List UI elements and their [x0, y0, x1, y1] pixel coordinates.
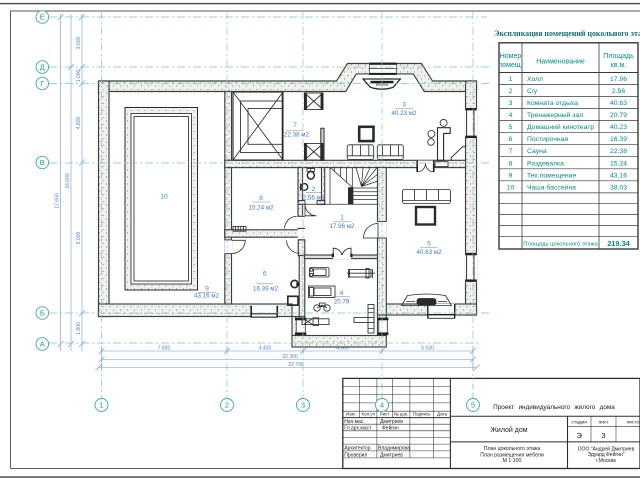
- svg-text:5: 5: [509, 124, 513, 131]
- svg-text:1: 1: [340, 215, 344, 222]
- svg-text:40.23: 40.23: [610, 124, 627, 131]
- svg-text:10: 10: [507, 184, 515, 191]
- svg-text:4.800: 4.800: [76, 117, 82, 130]
- svg-text:22.38 м2: 22.38 м2: [284, 132, 309, 139]
- svg-text:Д: Д: [40, 63, 45, 72]
- svg-text:Гл.арх.маст: Гл.арх.маст: [344, 425, 372, 431]
- svg-text:1: 1: [509, 76, 513, 83]
- svg-text:кв.м.: кв.м.: [611, 62, 627, 69]
- svg-text:9: 9: [205, 286, 209, 293]
- svg-text:1.800: 1.800: [76, 322, 82, 335]
- svg-text:стадия: стадия: [572, 421, 588, 426]
- svg-text:4 400: 4 400: [259, 345, 272, 351]
- svg-text:№ док.: № док.: [394, 412, 408, 417]
- svg-text:Проект индивидуального жилог: Проект индивидуального жилого дома: [493, 404, 615, 411]
- svg-text:Владимирова: Владимирова: [378, 446, 410, 452]
- svg-text:Жилой дом: Жилой дом: [490, 426, 527, 434]
- svg-text:Б: Б: [40, 309, 45, 318]
- svg-text:219.34: 219.34: [607, 239, 630, 248]
- svg-text:4: 4: [340, 290, 344, 297]
- svg-text:40.23 м2: 40.23 м2: [392, 110, 417, 117]
- svg-text:38.03: 38.03: [610, 184, 627, 191]
- svg-text:43.16: 43.16: [610, 172, 627, 179]
- svg-text:помещ.: помещ.: [498, 62, 522, 69]
- svg-text:22 790: 22 790: [288, 362, 304, 368]
- svg-text:М 1:100: М 1:100: [503, 458, 522, 464]
- svg-text:Экспликация помещений цокольно: Экспликация помещений цокольного этажа: [494, 29, 640, 38]
- svg-text:План цокольного этажа: План цокольного этажа: [484, 446, 541, 452]
- svg-text:Изм.: Изм.: [346, 412, 356, 417]
- svg-text:20.79: 20.79: [334, 298, 350, 305]
- svg-text:лист: лист: [598, 421, 609, 426]
- svg-text:15.24 м2: 15.24 м2: [249, 205, 274, 212]
- svg-text:16.600: 16.600: [65, 173, 71, 189]
- svg-text:7: 7: [293, 122, 297, 129]
- svg-text:Раздевалка: Раздевалка: [527, 160, 564, 167]
- svg-text:Подпись: Подпись: [413, 412, 431, 417]
- svg-text:Номер: Номер: [500, 53, 522, 60]
- svg-text:Дмитриев: Дмитриев: [380, 419, 403, 425]
- svg-text:5: 5: [427, 241, 431, 248]
- svg-text:40.63 м2: 40.63 м2: [417, 249, 442, 256]
- svg-text:20.79: 20.79: [610, 112, 627, 119]
- svg-text:А: А: [40, 340, 45, 349]
- svg-text:2.56 м2: 2.56 м2: [303, 195, 325, 202]
- svg-text:3: 3: [509, 100, 513, 107]
- svg-text:2: 2: [509, 88, 513, 95]
- svg-text:16.39: 16.39: [610, 136, 627, 143]
- svg-text:Лист: Лист: [380, 412, 390, 417]
- svg-text:22 300: 22 300: [282, 354, 298, 360]
- svg-text:16.39 м2: 16.39 м2: [253, 286, 278, 293]
- svg-text:3: 3: [402, 102, 406, 109]
- svg-text:Проверил: Проверил: [344, 452, 367, 458]
- svg-text:9.000: 9.000: [76, 232, 82, 245]
- svg-text:В: В: [40, 158, 45, 167]
- svg-text:Площадь цокольного этажа: Площадь цокольного этажа: [523, 242, 598, 248]
- svg-text:5: 5: [471, 401, 475, 410]
- svg-text:Дата: Дата: [437, 412, 447, 417]
- svg-text:3.000: 3.000: [76, 37, 82, 50]
- svg-text:1: 1: [99, 401, 103, 410]
- svg-text:7: 7: [509, 148, 513, 155]
- svg-text:листов: листов: [626, 421, 640, 426]
- svg-text:Г: Г: [40, 79, 44, 88]
- svg-text:г.Москва: г.Москва: [596, 458, 616, 464]
- svg-text:6: 6: [263, 271, 267, 278]
- svg-text:2.56: 2.56: [612, 88, 625, 95]
- svg-text:15.24: 15.24: [610, 160, 627, 167]
- svg-text:Э: Э: [576, 431, 582, 440]
- svg-text:17.96 м2: 17.96 м2: [330, 223, 355, 230]
- svg-text:9: 9: [509, 172, 513, 179]
- svg-text:Постирочная: Постирочная: [527, 136, 568, 143]
- svg-text:Кол.уч: Кол.уч: [362, 412, 376, 417]
- svg-text:4: 4: [380, 401, 384, 410]
- svg-text:40.63: 40.63: [610, 100, 627, 107]
- svg-text:Сауна: Сауна: [527, 148, 547, 155]
- svg-text:43.16 м2: 43.16 м2: [194, 293, 219, 300]
- svg-text:Наименование: Наименование: [536, 59, 585, 66]
- svg-text:Е: Е: [40, 13, 45, 22]
- svg-text:6: 6: [509, 136, 513, 143]
- svg-text:10: 10: [160, 194, 168, 201]
- svg-text:Дмитриев: Дмитриев: [380, 452, 403, 458]
- svg-text:22.38: 22.38: [610, 148, 627, 155]
- svg-text:Площадь: Площадь: [603, 53, 634, 60]
- svg-text:3: 3: [601, 431, 605, 440]
- svg-text:Холл: Холл: [527, 76, 543, 83]
- svg-text:17.96: 17.96: [610, 76, 627, 83]
- svg-text:2: 2: [225, 401, 229, 410]
- svg-text:Нач.мас.: Нач.мас.: [344, 419, 364, 425]
- svg-text:7 600: 7 600: [158, 345, 171, 351]
- svg-text:Комната отдыха: Комната отдыха: [527, 100, 578, 107]
- svg-text:Фейгин: Фейгин: [382, 424, 399, 431]
- svg-text:1.000: 1.000: [76, 70, 82, 83]
- svg-text:Тренажерный зал: Тренажерный зал: [527, 111, 583, 119]
- svg-text:8: 8: [259, 195, 263, 202]
- svg-text:17.650: 17.650: [55, 193, 61, 209]
- svg-text:Чаша бассейна: Чаша бассейна: [527, 183, 576, 191]
- svg-text:Архитектор: Архитектор: [344, 446, 371, 452]
- svg-text:3: 3: [301, 401, 305, 410]
- svg-text:5 630: 5 630: [421, 345, 434, 351]
- svg-text:4: 4: [509, 112, 513, 119]
- svg-text:Тех.помещение: Тех.помещение: [527, 172, 576, 179]
- svg-text:Домашний кинотеатр: Домашний кинотеатр: [527, 123, 594, 131]
- svg-text:2: 2: [312, 186, 316, 193]
- svg-text:С/у: С/у: [527, 88, 538, 95]
- svg-text:8: 8: [509, 160, 513, 167]
